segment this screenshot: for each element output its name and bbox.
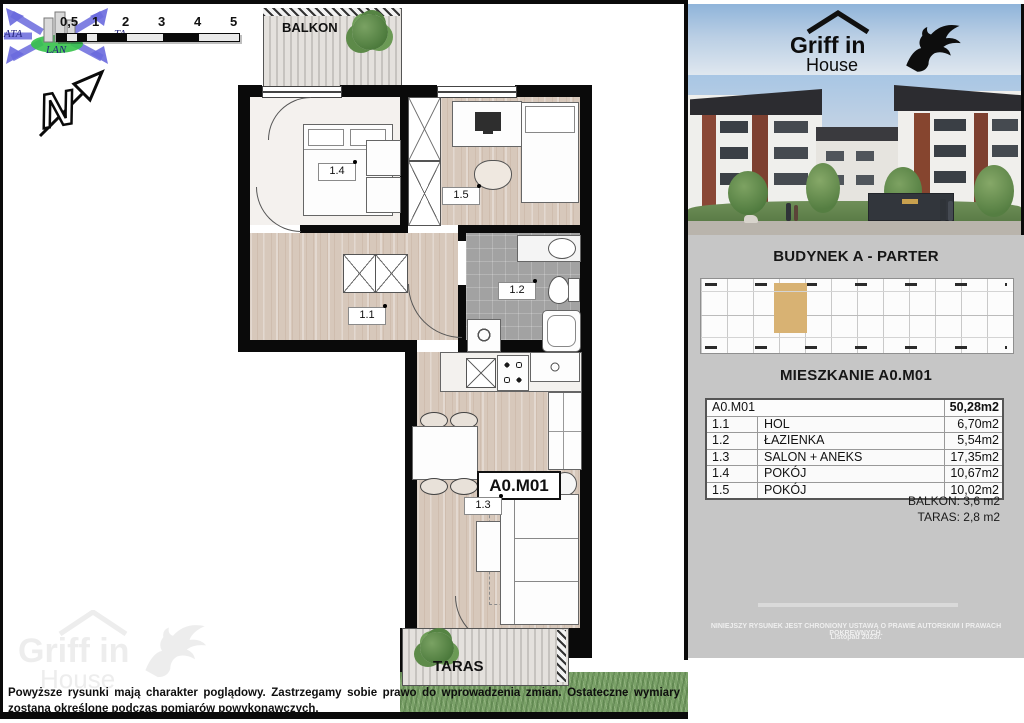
scale-bar-track [56,33,240,42]
toilet [548,276,570,304]
row-name: SALON + ANEKS [757,450,944,466]
row-area: 5,54m2 [944,433,1002,449]
balcony-plant [352,14,388,50]
row-no: 1.5 [707,483,757,499]
balcony-label: BALKON [282,20,338,35]
watermark-text-1: ATA [4,28,22,40]
dining-chair [450,478,478,495]
room-number: 1.3 [475,499,490,511]
sidebar: Griff in House [688,0,1024,723]
room-number: 1.5 [453,189,468,201]
coffee-table [476,521,502,572]
sofa [500,494,579,625]
room-number: 1.1 [359,309,374,321]
toilet-tank [568,278,580,302]
area-table: A0.M01 50,28m2 1.1 HOL 6,70m2 1.2 ŁAZIEN… [705,398,1004,500]
wall [300,225,408,233]
kitchen-cabinet-x [466,358,496,388]
terrace-area-note: TARAS: 2,8 m2 [918,510,1000,524]
row-area: 17,35m2 [944,450,1002,466]
ghost-griffin-icon [138,622,208,684]
table-total-area: 50,28m2 [944,400,1002,416]
sink [548,238,576,259]
info-panel: BUDYNEK A - PARTER MIESZKANIE A0.M01 A0.… [688,235,1024,658]
balcony-door-window [262,86,342,98]
ghost-logo: Griff in House [10,614,240,686]
desk [452,101,522,147]
kitchen-sink-unit [530,352,580,382]
scale-label: 0,5 [60,14,78,29]
balcony-railing [263,8,400,16]
table-unit: A0.M01 [707,400,944,416]
hall-wardrobe-x [343,254,376,293]
brand-line2: House [806,55,858,76]
table-row: 1.2 ŁAZIENKA 5,54m2 [707,432,1002,449]
scale-label: 2 [122,14,129,29]
bed-single [521,102,579,203]
hall-wardrobe-x [375,254,408,293]
room-number: 1.2 [509,284,524,296]
row-no: 1.1 [707,417,757,433]
floor-overview-plan [700,278,1014,354]
wall [405,340,417,657]
roof-icon [806,10,870,34]
room-label-1-3: 1.3 [464,497,502,515]
room-label-1-1: 1.1 [348,307,386,325]
washing-machine [467,319,501,352]
room-label-1-5: 1.5 [442,187,480,205]
scale-label: 1 [92,14,99,29]
wall [238,85,250,352]
table-row: 1.3 SALON + ANEKS 17,35m2 [707,449,1002,466]
wall [340,85,437,97]
row-name: ŁAZIENKA [757,433,944,449]
table-header-row: A0.M01 50,28m2 [707,400,1002,416]
terrace-label: TARAS [433,658,484,675]
north-letter: N [36,81,81,139]
closet-x [408,97,441,161]
row-name: POKÓJ [757,466,944,482]
copyright-line2: Listopad 2023r. [694,634,1018,641]
unit-label-box: A0.M01 [477,471,561,500]
scale-label: 5 [230,14,237,29]
footer-disclaimer: Powyższe rysunki mają charakter poglądow… [8,686,680,717]
terrace-edge [557,630,566,682]
griffin-icon [900,22,962,78]
dining-table [412,426,478,480]
wardrobe [366,140,401,176]
frame-left [0,0,3,719]
faint-scale-watermark [758,603,958,607]
building-title: BUDYNEK A - PARTER [688,248,1024,265]
tall-cabinet [548,392,582,470]
north-arrow-icon: N [26,66,118,148]
wardrobe [366,177,401,213]
dining-chair [420,478,448,495]
floorplan-page: ATA TA LAN 0,5 1 2 3 4 5 N BALKON [0,0,1024,723]
scale-bar: 0,5 1 2 3 4 5 [56,14,242,46]
room-number: 1.4 [329,165,344,177]
apartment-title: MIESZKANIE A0.M01 [688,367,1024,384]
scale-label: 4 [194,14,201,29]
row-no: 1.2 [707,433,757,449]
row-area: 10,67m2 [944,466,1002,482]
scale-label: 3 [158,14,165,29]
wall [400,97,408,225]
wall [458,225,466,241]
row-no: 1.3 [707,450,757,466]
stove [497,355,529,391]
wall [238,340,417,352]
room-label-1-4: 1.4 [318,163,356,181]
row-name: HOL [757,417,944,433]
bathtub [542,310,581,352]
brand-header: Griff in House [688,4,1024,75]
wall [458,225,592,233]
closet-x [408,161,441,226]
room-label-1-2: 1.2 [498,282,536,300]
row-no: 1.4 [707,466,757,482]
room-1-5-window [437,86,517,98]
building-photo [688,75,1024,237]
table-row: 1.4 POKÓJ 10,67m2 [707,465,1002,482]
row-area: 6,70m2 [944,417,1002,433]
table-row: 1.1 HOL 6,70m2 [707,416,1002,433]
door-arc [256,187,301,232]
unit-label: A0.M01 [489,476,549,496]
balcony-area-note: BALKON: 3,6 m2 [908,494,1000,508]
